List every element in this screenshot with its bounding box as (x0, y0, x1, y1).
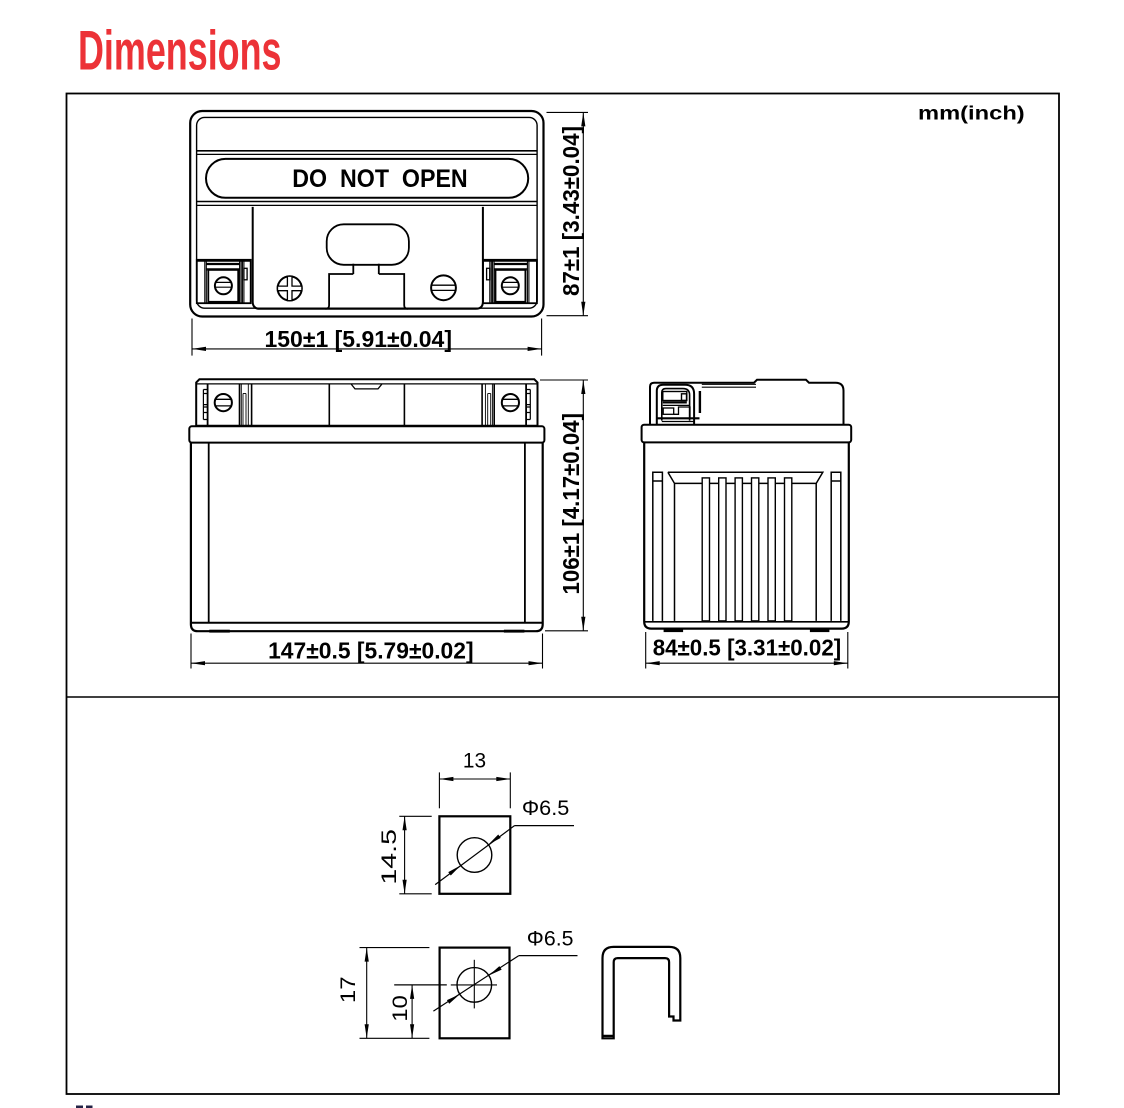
svg-text:17: 17 (336, 976, 360, 1003)
svg-text:84±0.5 [3.31±0.02]: 84±0.5 [3.31±0.02] (653, 635, 842, 661)
svg-text:14.5: 14.5 (377, 829, 401, 885)
svg-text:DO NOT OPEN: DO NOT OPEN (292, 165, 467, 193)
svg-text:13: 13 (463, 749, 486, 773)
svg-text:mm(inch): mm(inch) (918, 102, 1025, 124)
svg-text:150±1 [5.91±0.04]: 150±1 [5.91±0.04] (265, 326, 453, 352)
svg-text:Φ6.5: Φ6.5 (522, 796, 569, 820)
svg-text:Φ6.5: Φ6.5 (527, 926, 574, 950)
svg-text:10: 10 (388, 995, 412, 1022)
svg-text:Dimensions: Dimensions (78, 18, 282, 81)
svg-text:106±1 [4.17±0.04]: 106±1 [4.17±0.04] (558, 413, 584, 595)
svg-text:87±1 [3.43±0.04]: 87±1 [3.43±0.04] (558, 126, 584, 296)
svg-text:147±0.5 [5.79±0.02]: 147±0.5 [5.79±0.02] (268, 637, 474, 663)
